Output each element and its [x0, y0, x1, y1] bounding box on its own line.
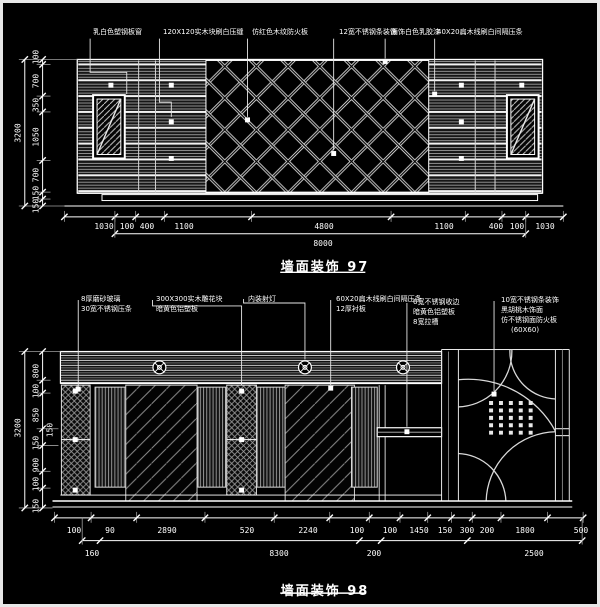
d98-callout-3b: 12厚衬板 — [336, 305, 366, 314]
d98-slat-panel-3 — [256, 387, 285, 487]
d98-spotlight-1 — [153, 361, 166, 374]
d98-dim-left: 900 — [32, 458, 41, 472]
d98-callout-3a: 60X20扁木线刷白间隔压条 — [336, 295, 422, 304]
d97-callout-4: 面饰白色乳胶漆 — [391, 28, 440, 37]
d98-dim-left: 100 — [32, 384, 41, 398]
d98-dim: 1450 — [409, 526, 428, 535]
d98-dim: 2890 — [157, 526, 176, 535]
d98-dim: 200 — [480, 526, 494, 535]
d98-callout-5c: 仿不锈钢面防火板 — [501, 316, 557, 325]
d97-dim-left: 350 — [32, 98, 41, 112]
d97-dim: 1030 — [535, 222, 554, 231]
d97-callout-1: 120X120实木块刷白压缝 — [163, 28, 244, 37]
d97-diamond-lattice-panel — [206, 60, 429, 192]
d98-dim: 100 — [67, 526, 81, 535]
d98-dim: 2240 — [298, 526, 317, 535]
d98-dim-row2: 8300 — [269, 549, 288, 558]
d98-callout-4b: 暗黄色铝塑板 — [413, 308, 455, 317]
d98-dim: 100 — [350, 526, 364, 535]
drawing-97-elevation — [19, 39, 567, 273]
d98-callout-0a: 8厚磨砂玻璃 — [81, 295, 120, 304]
d98-soffit-band — [60, 352, 441, 384]
d98-dim: 500 — [574, 526, 588, 535]
d98-callout-1b: 暗黄色铝塑板 — [156, 305, 198, 314]
d98-title: 墙面装饰 98 — [281, 580, 370, 599]
d98-glass-panel-2 — [285, 385, 354, 501]
d98-callout-5d: (60X60) — [511, 326, 539, 335]
d98-dim: 150 — [438, 526, 452, 535]
d98-glass-panel-1 — [126, 385, 197, 501]
d98-dim-row2: 160 — [85, 549, 99, 558]
d98-dim-left: 800 — [32, 364, 41, 378]
d97-dim: 400 — [489, 222, 503, 231]
d98-dim-left: 150 — [32, 499, 41, 513]
d97-dim: 100 — [510, 222, 524, 231]
d97-dim-left: 150 — [32, 199, 41, 213]
d98-spotlight-2 — [299, 361, 312, 374]
d98-dim-left: 150 — [46, 423, 55, 437]
d97-title: 墙面装饰 97 — [281, 256, 370, 275]
d97-dim: 4800 — [314, 222, 333, 231]
d98-callout-2a: 内装射灯 — [248, 295, 276, 304]
d98-callout-0b: 30宽不锈钢压条 — [81, 305, 132, 314]
d98-slat-panel-4 — [351, 387, 377, 487]
d97-left-dim-chain — [19, 56, 77, 209]
d97-callout-2: 仿红色木纹防火板 — [252, 28, 308, 37]
d98-dim-left: 100 — [32, 477, 41, 491]
d97-right-window — [507, 95, 539, 158]
d98-bottom-dim-chain-row2 — [79, 518, 585, 545]
d97-dim-left: 700 — [32, 168, 41, 182]
d97-baseboard — [64, 193, 563, 206]
d98-dim-left-total: 3200 — [14, 418, 23, 437]
d98-dim: 90 — [105, 526, 115, 535]
d97-callout-5: 40X20扁木线刷白间隔压条 — [437, 28, 523, 37]
d98-dim-left: 150 — [32, 436, 41, 450]
d98-slat-panel-2 — [198, 387, 226, 487]
d98-bottom-dim-chain-row1 — [51, 512, 586, 523]
d97-dim-left-total: 3200 — [14, 123, 23, 142]
d98-dim: 520 — [240, 526, 254, 535]
d98-callout-4a: 6宽不锈钢收边 — [413, 298, 459, 307]
d97-dim-left: 700 — [32, 74, 41, 88]
d98-dim-row2: 200 — [367, 549, 381, 558]
d97-callout-0: 乳白色塑钢板窗 — [93, 28, 142, 37]
d97-dim-left: 100 — [32, 50, 41, 64]
d97-left-window — [93, 95, 125, 158]
cad-canvas: 乳白色塑钢板窗 120X120实木块刷白压缝 仿红色木纹防火板 12宽不锈钢条装… — [0, 0, 600, 607]
drawing-98-elevation — [19, 296, 597, 593]
d97-dim: 100 — [120, 222, 134, 231]
d98-spotlight-3 — [397, 361, 410, 374]
d98-dim: 300 — [460, 526, 474, 535]
d97-dim-total: 8000 — [313, 239, 332, 248]
d97-dim: 1100 — [434, 222, 453, 231]
d97-dim: 1100 — [174, 222, 193, 231]
d98-callout-4c: 8宽拉槽 — [413, 318, 438, 327]
d98-dim-row2: 2500 — [524, 549, 543, 558]
d98-dim: 1800 — [515, 526, 534, 535]
d98-slat-panel-1 — [95, 387, 126, 487]
d97-dim: 1030 — [94, 222, 113, 231]
d98-callout-5a: 10宽不锈钢条装饰 — [501, 296, 559, 305]
d98-dim: 100 — [383, 526, 397, 535]
d98-callout-1a: 300X300实木雕花块 — [156, 295, 223, 304]
d98-callout-5b: 黑胡桃木饰面 — [501, 306, 543, 315]
d97-callout-3: 12宽不锈钢条装饰 — [339, 28, 397, 37]
d98-dim-left: 850 — [32, 408, 41, 422]
d97-dim-left: 1050 — [32, 127, 41, 146]
d97-dim: 400 — [140, 222, 154, 231]
